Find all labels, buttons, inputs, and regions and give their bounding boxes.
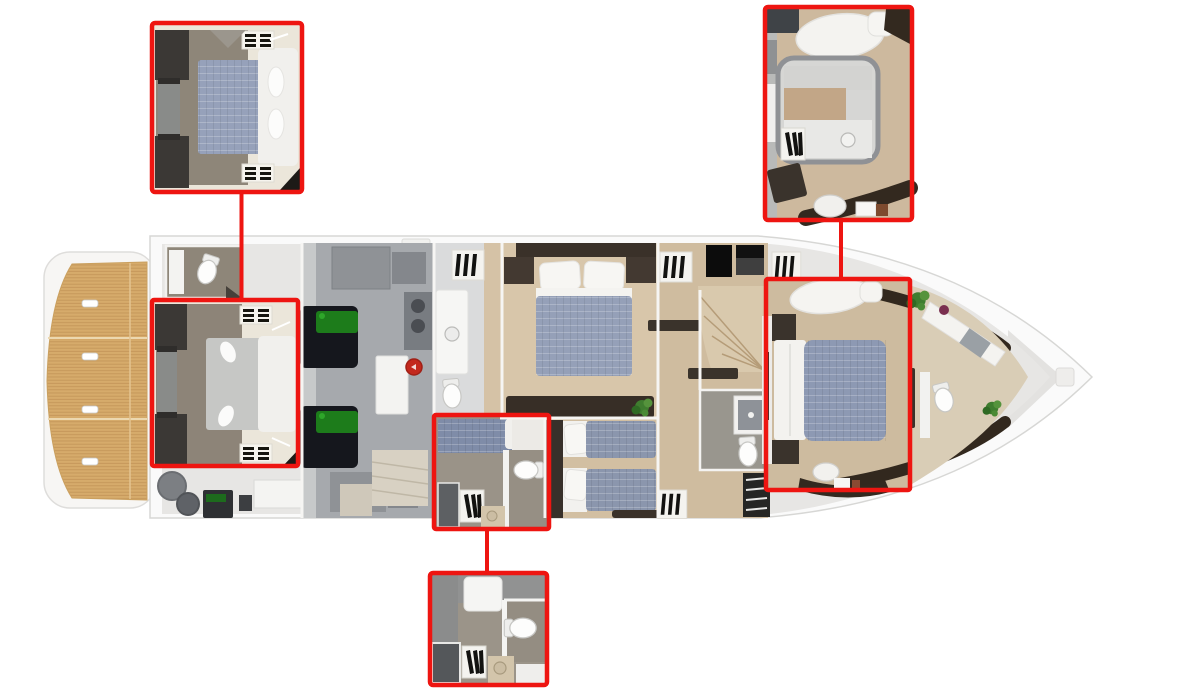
platform-handle: [82, 353, 98, 360]
machinery-box: [332, 247, 390, 289]
flowers-icon: [939, 305, 949, 315]
aft-bed-duvet: [258, 336, 296, 432]
inset-crew-bathroom: [430, 573, 547, 685]
inset-bow-cabin: [765, 7, 912, 220]
nightstand: [772, 440, 799, 464]
vent-grille-icon: [658, 490, 687, 519]
mid-bathroom: [700, 390, 770, 470]
crew-cabinet: [438, 483, 459, 527]
platform-handle: [82, 406, 98, 413]
toilet-icon: [504, 618, 536, 638]
vent-grille-icon: [242, 31, 274, 49]
platform-handle: [82, 458, 98, 465]
desk-item: [852, 480, 860, 488]
sink-icon: [841, 133, 855, 147]
wardrobe: [155, 30, 189, 80]
sink-icon: [494, 662, 506, 674]
sink-icon: [487, 511, 497, 521]
galley: [434, 243, 504, 433]
toilet-icon: [514, 461, 543, 479]
desk-item: [876, 204, 888, 216]
inset-aft-bed-white: [258, 48, 298, 166]
sink-icon: [445, 327, 459, 341]
shower-tray: [464, 577, 502, 611]
nightstand: [504, 257, 534, 284]
bow-fitting: [1056, 368, 1074, 386]
bench: [158, 82, 180, 136]
vent-grille-icon: [242, 164, 274, 182]
aft-stairs: [372, 450, 428, 506]
engine-port: [300, 306, 358, 368]
floor-plan-canvas: [0, 0, 1200, 693]
pillow: [583, 261, 624, 291]
vent-grille-icon: [240, 306, 272, 324]
engine-starboard: [300, 406, 358, 468]
storage-box: [254, 480, 306, 508]
guest-cabin-midship: [502, 243, 658, 418]
engine-room: [300, 243, 434, 518]
ottoman: [860, 282, 882, 302]
nightstand: [626, 257, 656, 283]
vent-grille-icon: [781, 128, 805, 160]
pillow: [563, 423, 588, 455]
work-table: [376, 356, 408, 414]
aft-bathroom: [166, 246, 242, 298]
wardrobe: [155, 414, 187, 464]
nightstand: [772, 314, 796, 341]
vent-grille-icon: [460, 490, 484, 522]
pillow: [563, 469, 588, 501]
vent-grille-icon: [452, 250, 484, 280]
pillow: [268, 109, 284, 139]
tv-cabinet: [706, 245, 732, 277]
cabinet: [432, 643, 460, 683]
machinery-box: [392, 252, 426, 284]
pillow: [539, 261, 581, 292]
wardrobe: [155, 304, 187, 350]
door-panel: [648, 320, 700, 331]
capstan: [177, 493, 199, 515]
vent-grille-icon: [660, 252, 692, 282]
desk-item: [856, 202, 876, 216]
inset-aft-cabin: [152, 23, 302, 192]
swim-platform: [47, 262, 147, 500]
vent-grille-icon: [462, 646, 486, 678]
aft-bath-fixture: [169, 250, 184, 294]
chair: [814, 195, 846, 217]
platform-handle: [82, 300, 98, 307]
pillow: [268, 67, 284, 97]
crew-cabin: [436, 417, 547, 527]
wardrobe: [155, 136, 189, 188]
aft-cabin: [153, 300, 299, 467]
bench: [157, 350, 177, 414]
door-panel: [688, 368, 738, 379]
floor-plan-svg: [0, 0, 1200, 693]
vent-grille-icon: [240, 444, 272, 462]
